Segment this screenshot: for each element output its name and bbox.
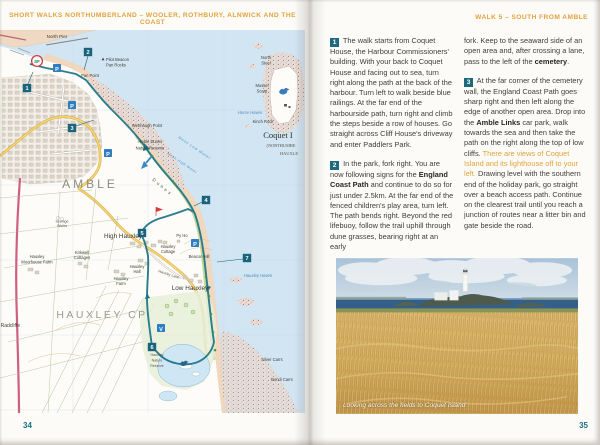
label-hauxley-cp: HAUXLEY CP (56, 309, 147, 321)
label-beacon-hill: Beacon Hill (189, 254, 210, 259)
map-marker-6: 6 (148, 343, 156, 351)
step-2-text-b: and continue to do so for just under 2.5… (330, 180, 453, 251)
label-sewage-2: Works (57, 224, 67, 228)
svg-text:7: 7 (245, 256, 248, 262)
svg-text:P: P (106, 152, 110, 158)
text-column-1: 1 The walk starts from Coquet House, the… (330, 36, 455, 261)
label-north-steel-1: North (261, 55, 272, 60)
left-page-header: SHORT WALKS NORTHUMBERLAND – WOOLER, ROT… (0, 12, 305, 26)
label-hall-2: Hall (133, 269, 140, 274)
page-number-left: 34 (23, 421, 32, 430)
label-horse-haven: Horse Haven (238, 110, 263, 115)
step-2-continued: fork. Keep to the seaward side of an ope… (464, 36, 589, 67)
label-nature-reserve-2: Nature (152, 359, 163, 363)
book-spread: SHORT WALKS NORTHUMBERLAND – WOOLER, ROT… (0, 0, 600, 445)
label-high-hauxley: High Hauxley (104, 233, 143, 240)
label-silver-carrs: Silver Carrs (261, 357, 282, 362)
label-mussel-scarp-2: Scarp (257, 89, 268, 94)
label-wenhaugh-point: Wenhaugh Point (132, 123, 163, 128)
label-north-steel-2: Steel (261, 61, 270, 66)
label-pan-rocks: Pan Rocks (106, 63, 126, 68)
map-marker-2: 2 (84, 48, 92, 56)
label-nature-reserve-1: Hauxley (151, 353, 164, 357)
walk-directions: 1 The walk starts from Coquet House, the… (330, 36, 589, 261)
map-marker-7: 7 (243, 254, 251, 262)
label-kirkwell-2: Cottages (74, 255, 90, 260)
right-page-header: WALK 5 – SOUTH FROM AMBLE (320, 14, 588, 21)
map-marker-3: 3 (68, 124, 76, 132)
parking-marker-3: P (104, 149, 112, 158)
photo-illustration (336, 258, 578, 414)
photo-caption: Looking across the fields to Coquet Isla… (343, 402, 465, 409)
map-marker-1: 1 (23, 84, 31, 92)
label-low-hauxley: Low Hauxley (172, 285, 209, 292)
label-north-pier: North Pier (47, 34, 68, 39)
visitor-centre-marker: V (157, 324, 165, 333)
label-nature-reserve-3: Reserve (150, 364, 163, 368)
svg-text:3: 3 (70, 126, 73, 132)
label-hauxley-haven: Hauxley Haven (244, 273, 273, 278)
start-finish-marker: SF (32, 56, 43, 67)
label-amble-dunes-2: Nature Reserve (136, 146, 165, 151)
label-mussel-scarp-1: Mussel (256, 83, 269, 88)
label-coquet-island: Coquet I (263, 130, 293, 140)
step-2: 2 In the park, fork right. You are now f… (330, 159, 455, 252)
svg-text:SF: SF (34, 59, 40, 64)
step-1: 1 The walk starts from Coquet House, the… (330, 36, 455, 150)
svg-text:1: 1 (25, 86, 28, 92)
label-amble-dunes-1: Amble Dunes (138, 139, 163, 144)
label-kinch-rock: Kinch Rock (253, 119, 275, 124)
label-py-ho: Py Ho (176, 233, 188, 238)
label-sewage-1: Sewage (56, 220, 69, 224)
step-2-cont-text-b: . (567, 57, 569, 66)
step-3-number: 3 (464, 78, 473, 87)
svg-text:2: 2 (86, 50, 89, 56)
label-farm-2: Farm (116, 281, 126, 286)
photo-coquet-island: Looking across the fields to Coquet Isla… (336, 258, 578, 414)
walk-map-svg: P P P P V 1 2 3 4 5 6 7 SF North Pier Pi… (0, 30, 305, 413)
label-coquet-sub1: (NORTHUMBE (266, 143, 295, 148)
parking-marker-1: P (53, 64, 61, 73)
svg-text:P: P (193, 242, 197, 248)
page-number-right: 35 (548, 421, 588, 430)
step-2-cont-bold: cemetery (535, 57, 567, 66)
label-cottage-2: Cottage (161, 249, 176, 254)
svg-text:P: P (70, 104, 74, 110)
svg-text:V: V (159, 327, 163, 333)
label-moorhouse-2: Moorhouse Farm (21, 260, 53, 265)
label-bondi-carrs: Bondi Carrs (271, 377, 293, 382)
step-1-text: The walk starts from Coquet House, the H… (330, 36, 452, 149)
text-column-2: fork. Keep to the seaward side of an ope… (464, 36, 589, 261)
label-pan-point: Pan Point (81, 73, 100, 78)
label-moorhouse-1: Hauxley (30, 254, 46, 259)
step-3-bold: Amble Links (476, 118, 520, 127)
svg-text:P: P (55, 67, 59, 73)
step-2-number: 2 (330, 161, 339, 170)
label-amble: AMBLE (62, 177, 118, 191)
map-marker-4: 4 (202, 196, 210, 204)
island-buildings (434, 292, 447, 300)
label-radcliffe: Radcliffe (1, 323, 21, 329)
parking-marker-4: P (191, 239, 199, 248)
walk-map: P P P P V 1 2 3 4 5 6 7 SF North Pier Pi… (0, 30, 305, 413)
step-3: 3 At the far corner of the cemetery wall… (464, 76, 589, 231)
step-3-text-c: Drawing level with the southern end of t… (464, 169, 586, 229)
label-pilot-beacon: Pilot Beacon (106, 57, 130, 62)
svg-text:6: 6 (150, 345, 153, 351)
label-coquet-sub2: HAUXLE (280, 151, 298, 156)
step-1-number: 1 (330, 38, 339, 47)
parking-marker-2: P (68, 101, 76, 110)
